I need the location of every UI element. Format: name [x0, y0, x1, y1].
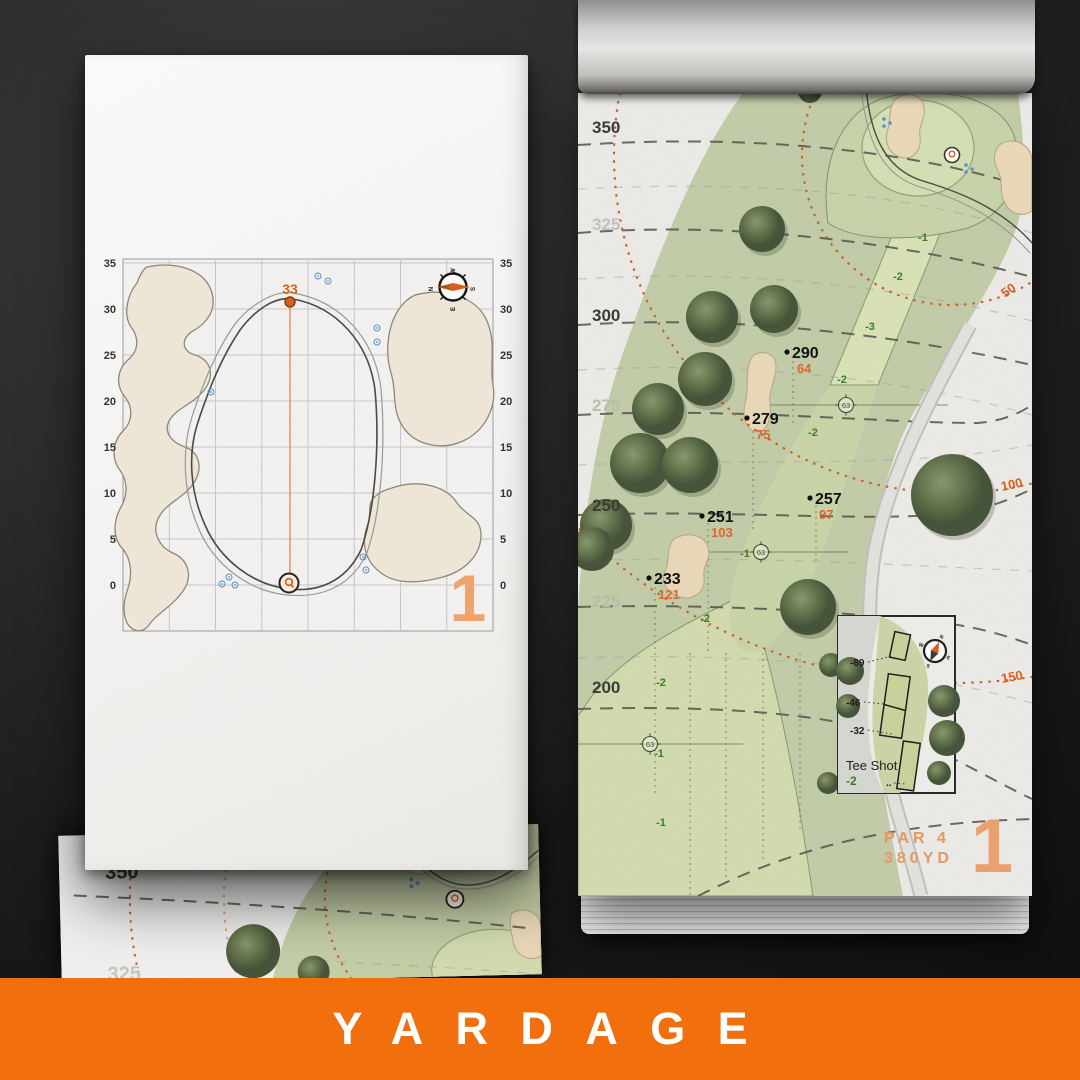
- page-curl[interactable]: [578, 0, 1035, 94]
- page-stack-edges[interactable]: [581, 896, 1029, 934]
- green-detail-map: 33 3530 2520 1510 50 3530: [85, 55, 528, 870]
- yardage-banner: YARDAGE: [0, 978, 1080, 1080]
- hole-map-page: 63 63 63 350 325 300: [578, 93, 1032, 896]
- hole-map-booklet: 63 63 63 350 325 300: [578, 0, 1035, 940]
- banner-title: YARDAGE: [300, 1003, 780, 1055]
- green-detail-page: 33 3530 2520 1510 50 3530: [85, 55, 528, 870]
- hole-map: 63 63 63 350 325 300: [578, 93, 1032, 896]
